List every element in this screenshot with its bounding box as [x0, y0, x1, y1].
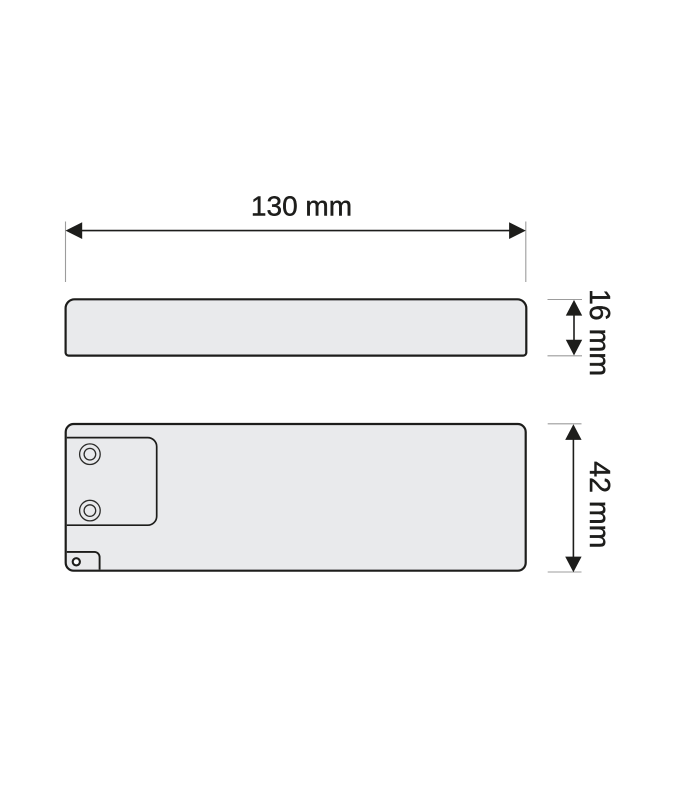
svg-text:130 mm: 130 mm [251, 190, 352, 221]
svg-text:42 mm: 42 mm [583, 461, 615, 548]
svg-text:16 mm: 16 mm [583, 289, 615, 376]
